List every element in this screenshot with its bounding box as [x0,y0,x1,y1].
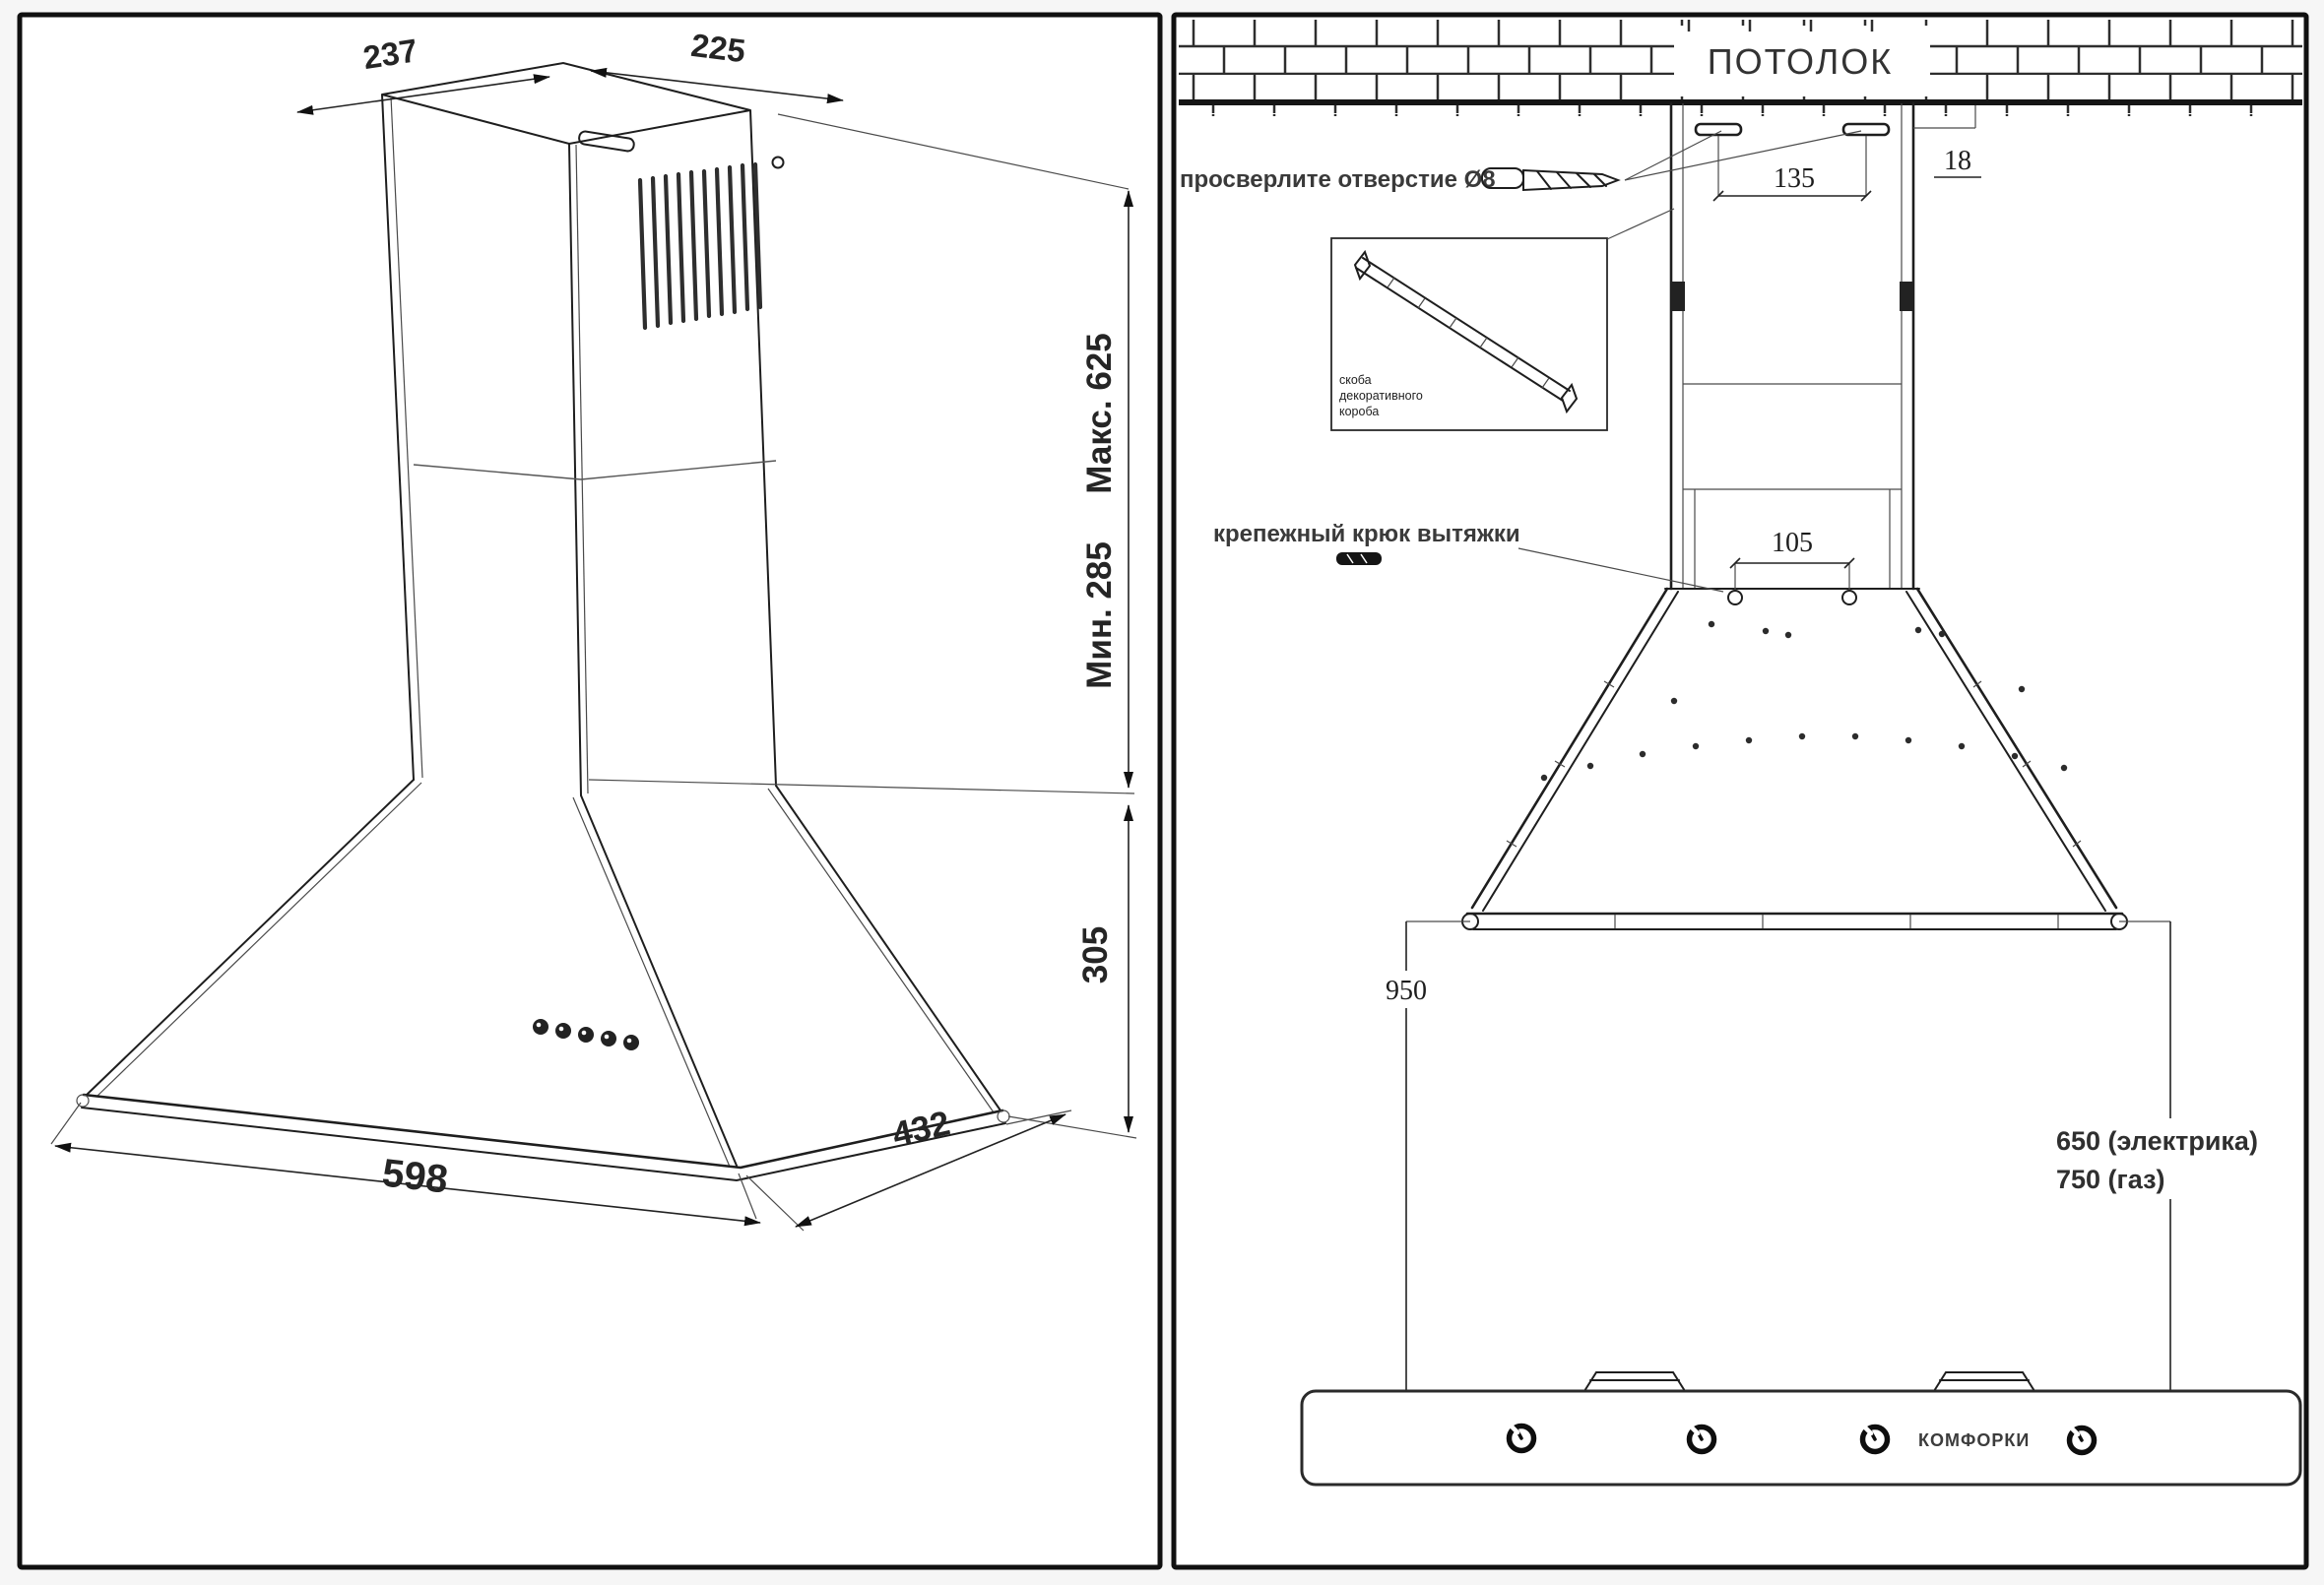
dim-hook-spacing: 105 [1772,528,1813,558]
bracket-caption-2: декоративного [1339,389,1423,403]
left-panel-frame [20,15,1160,1567]
dim-hole-spacing: 135 [1774,163,1815,194]
hook-caption: крепежный крюк вытяжки [1213,521,1520,547]
bracket-caption-1: скоба [1339,373,1372,387]
dim-top-width: 225 [689,27,747,69]
knob-icon-3 [1863,1427,1888,1452]
right-panel: ПОТОЛОК 18 [1174,15,2306,1567]
installation-diagram: 237 225 Макс. 625 Мин. 285 305 598 432 [0,0,2324,1585]
ceiling-bricks: ПОТОЛОК [1179,20,2302,116]
hook-icon [1336,552,1382,565]
dim-height-min: Мин. 285 [1080,541,1119,689]
cooktop-panel [1302,1391,2300,1485]
duct-bracket-left [1671,282,1685,311]
dim-height-above-hob: 950 [1386,976,1427,1006]
knob-icon-1 [1510,1426,1534,1451]
bracket-caption-3: короба [1339,405,1379,418]
dim-wall-offset: 18 [1944,146,1971,176]
dim-body-width: 598 [380,1151,450,1201]
hob-label: КОМФОРКИ [1918,1430,2030,1450]
drill-instruction: просверлите отверстие Ø8 [1180,166,1496,193]
dim-clearance-gas: 750 (газ) [2056,1165,2165,1194]
dim-cone-height: 305 [1076,926,1115,983]
duct-bracket-right [1900,282,1913,311]
ceiling-label: ПОТОЛОК [1708,41,1893,82]
knob-icon-2 [1690,1427,1714,1452]
dim-clearance-electric: 650 (электрика) [2056,1126,2258,1156]
left-panel: 237 225 Макс. 625 Мин. 285 305 598 432 [20,15,1160,1567]
knob-icon-4 [2070,1428,2095,1453]
dim-height-max: Макс. 625 [1080,333,1119,493]
